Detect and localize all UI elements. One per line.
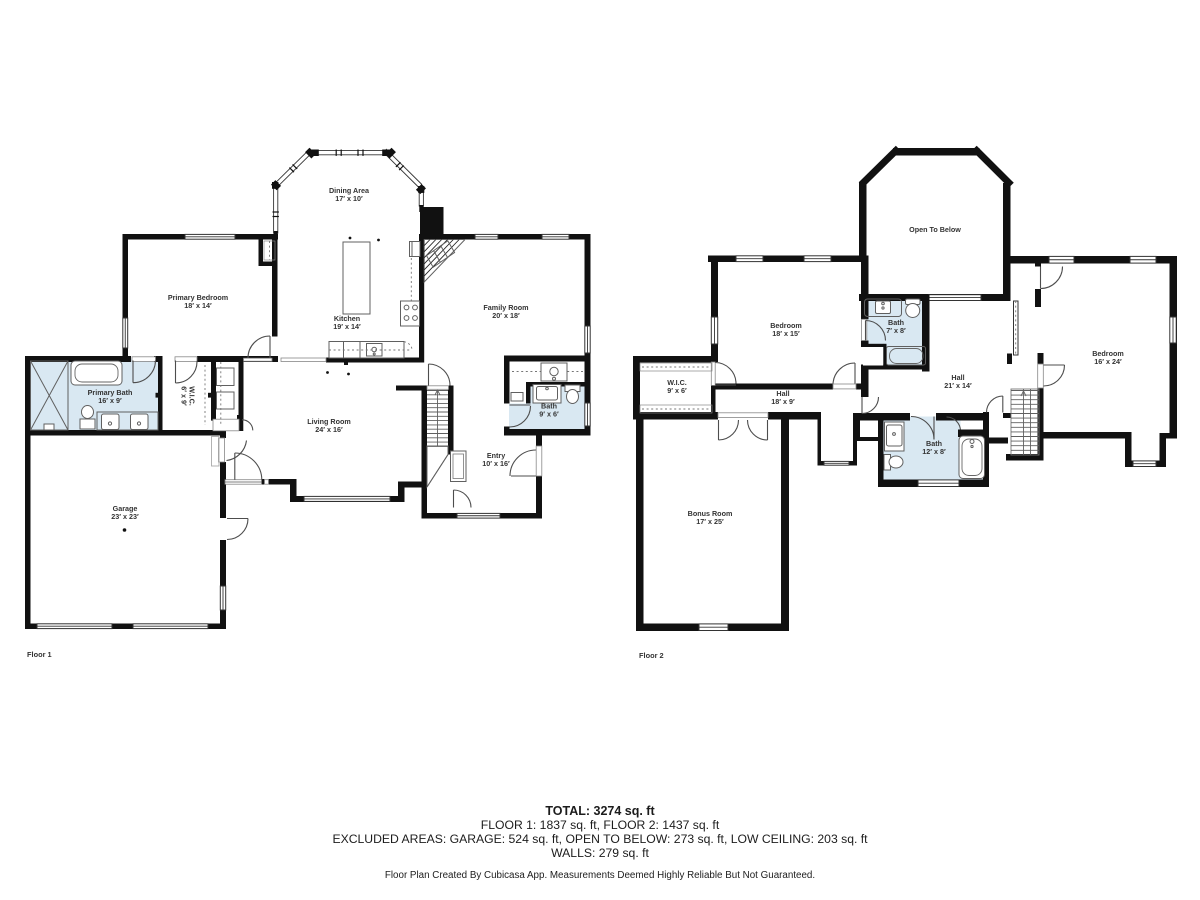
svg-text:Floor Plan Created By Cubicasa: Floor Plan Created By Cubicasa App. Meas…	[385, 870, 815, 881]
svg-text:EXCLUDED AREAS: GARAGE: 524 sq: EXCLUDED AREAS: GARAGE: 524 sq. ft, OPEN…	[332, 832, 868, 846]
svg-text:Floor 1: Floor 1	[27, 650, 52, 659]
svg-text:17′ x 10′: 17′ x 10′	[335, 194, 363, 203]
svg-text:16′ x 24′: 16′ x 24′	[1094, 357, 1122, 366]
svg-text:7′ x 8′: 7′ x 8′	[886, 326, 906, 335]
svg-text:Open To Below: Open To Below	[909, 225, 961, 234]
svg-text:19′ x 14′: 19′ x 14′	[333, 322, 361, 331]
svg-text:12′ x 8′: 12′ x 8′	[922, 447, 946, 456]
svg-text:24′ x 16′: 24′ x 16′	[315, 425, 343, 434]
svg-text:21′ x 14′: 21′ x 14′	[944, 381, 972, 390]
svg-text:6′ x 9′: 6′ x 9′	[180, 386, 189, 406]
svg-text:20′ x 18′: 20′ x 18′	[492, 311, 520, 320]
svg-text:16′ x 9′: 16′ x 9′	[98, 396, 122, 405]
svg-text:9′ x 6′: 9′ x 6′	[667, 386, 687, 395]
svg-text:18′ x 15′: 18′ x 15′	[772, 329, 800, 338]
svg-text:9′ x 6′: 9′ x 6′	[539, 410, 559, 419]
svg-text:23′ x 23′: 23′ x 23′	[111, 512, 139, 521]
svg-text:WALLS: 279 sq. ft: WALLS: 279 sq. ft	[551, 846, 649, 860]
svg-text:18′ x 9′: 18′ x 9′	[771, 397, 795, 406]
svg-text:Floor 2: Floor 2	[639, 651, 664, 660]
svg-text:FLOOR 1: 1837 sq. ft, FLOOR 2:: FLOOR 1: 1837 sq. ft, FLOOR 2: 1437 sq. …	[481, 818, 720, 832]
svg-text:17′ x 25′: 17′ x 25′	[696, 517, 724, 526]
svg-text:18′ x 14′: 18′ x 14′	[184, 301, 212, 310]
svg-text:TOTAL: 3274 sq. ft: TOTAL: 3274 sq. ft	[545, 804, 655, 818]
svg-text:10′ x 16′: 10′ x 16′	[482, 459, 510, 468]
